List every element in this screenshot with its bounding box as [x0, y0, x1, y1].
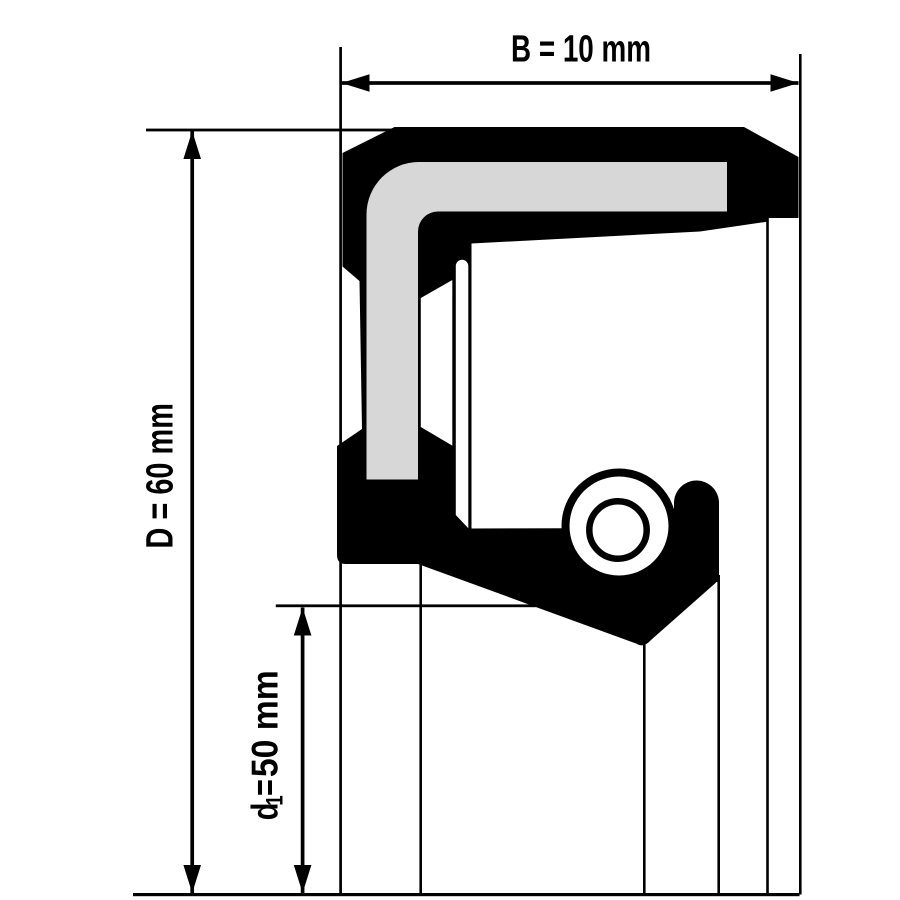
svg-text:50 mm: 50 mm [244, 670, 286, 777]
svg-text:D = 60 mm: D = 60 mm [140, 403, 182, 549]
svg-text:B = 10 mm: B = 10 mm [511, 29, 651, 71]
svg-text:=: = [245, 779, 286, 796]
